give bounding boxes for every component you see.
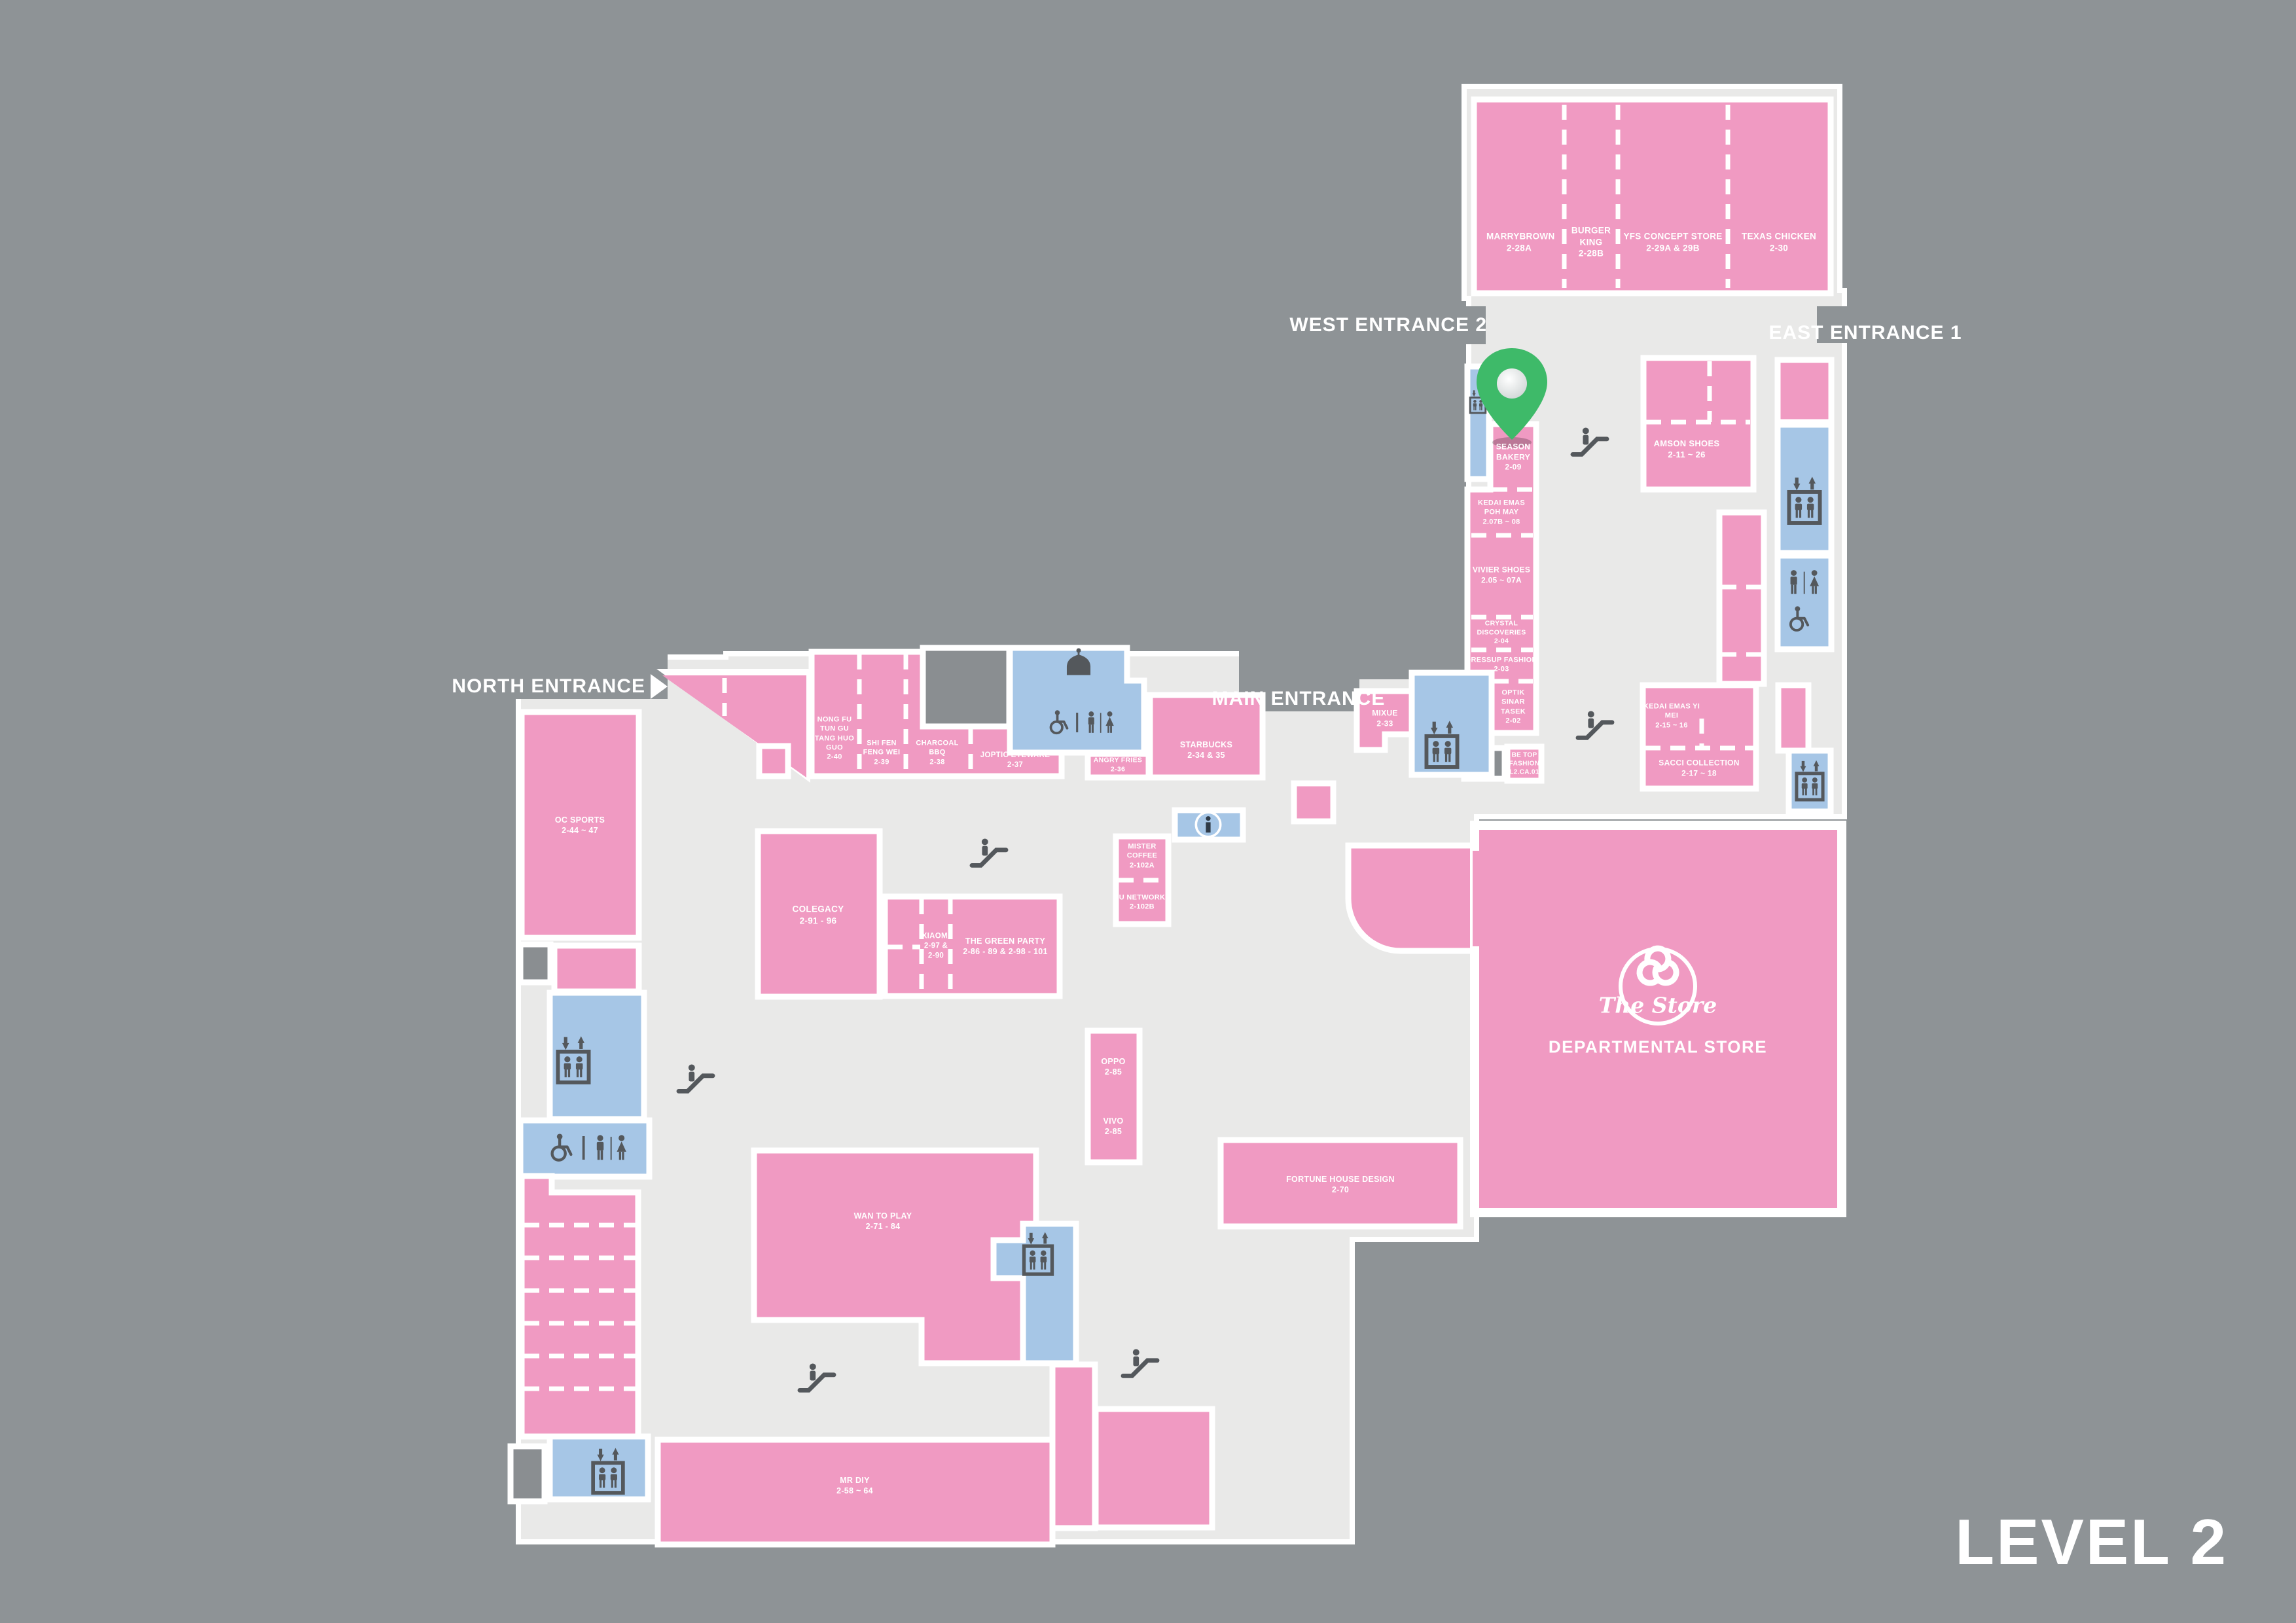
facility-elevator-lobby[interactable] <box>550 1436 648 1499</box>
store-shi-fen-feng-wei[interactable] <box>859 652 906 776</box>
retail-unit[interactable] <box>554 946 639 991</box>
service-area <box>520 944 550 982</box>
store-oppo[interactable] <box>1088 1031 1139 1096</box>
entrance-gap <box>458 630 668 699</box>
store-crystal-discoveries[interactable] <box>1467 617 1536 650</box>
facility-elevator-lobby[interactable] <box>550 993 644 1119</box>
facility-elevator-lobby[interactable] <box>1412 673 1492 775</box>
store-oc-sports[interactable] <box>522 712 639 938</box>
facility-restroom[interactable] <box>1778 556 1831 649</box>
store-optik-sinar-tasek[interactable] <box>1491 681 1536 733</box>
store-fortune-house-design[interactable] <box>1221 1140 1460 1226</box>
restroom-divider <box>583 1136 585 1160</box>
retail-unit[interactable] <box>759 746 788 776</box>
retail-unit[interactable] <box>1052 1364 1095 1528</box>
store-colegacy[interactable] <box>758 831 880 997</box>
restroom-divider <box>1076 713 1078 732</box>
service-area <box>923 648 1009 726</box>
seam <box>1473 851 1484 946</box>
facility-elevator-lobby[interactable] <box>1778 425 1831 553</box>
store-marrybrown[interactable] <box>1474 99 1564 293</box>
retail-unit[interactable] <box>1719 512 1764 684</box>
store-departmental-store[interactable] <box>1348 846 1478 951</box>
store-xiaomi[interactable] <box>922 897 950 996</box>
store-angry-fries[interactable] <box>1088 754 1149 777</box>
store-texas-chicken[interactable] <box>1728 99 1831 293</box>
store-the-green-party[interactable] <box>950 897 1060 996</box>
store-vivier-shoes[interactable] <box>1467 535 1536 617</box>
store-be-top-fashion[interactable] <box>1507 747 1541 781</box>
retail-unit[interactable] <box>522 1176 638 1436</box>
store-kedai-emas-yi-mei[interactable] <box>1643 685 1756 748</box>
store-mister-coffee[interactable] <box>1116 836 1168 880</box>
store-mr-diy[interactable] <box>658 1440 1052 1544</box>
store-starbucks[interactable] <box>1150 695 1263 777</box>
store-nong-fu-tun-gu-tang-huo-guo[interactable] <box>812 652 859 776</box>
entrance-gap <box>1388 306 1486 344</box>
store-yfs-concept-store[interactable] <box>1618 99 1728 293</box>
retail-unit[interactable] <box>1096 1409 1212 1527</box>
store-burger-king[interactable] <box>1564 99 1618 293</box>
store-u-network[interactable] <box>1116 880 1168 924</box>
store-departmental-store[interactable] <box>1475 825 1842 1213</box>
mall-floor-plan: WEST ENTRANCE 2 EAST ENTRANCE 1 MAIN ENT… <box>0 0 2296 1623</box>
store-vivo[interactable] <box>1088 1096 1139 1162</box>
entrance-gap <box>1817 306 1914 343</box>
store-sacci-collection[interactable] <box>1643 748 1756 789</box>
retail-unit[interactable] <box>1294 783 1333 821</box>
retail-unit[interactable] <box>1778 360 1831 422</box>
service-area <box>511 1446 545 1501</box>
location-pin-ball <box>1497 368 1527 399</box>
store-kedai-emas-poh-may[interactable] <box>1467 490 1536 535</box>
retail-unit[interactable] <box>1778 685 1808 751</box>
